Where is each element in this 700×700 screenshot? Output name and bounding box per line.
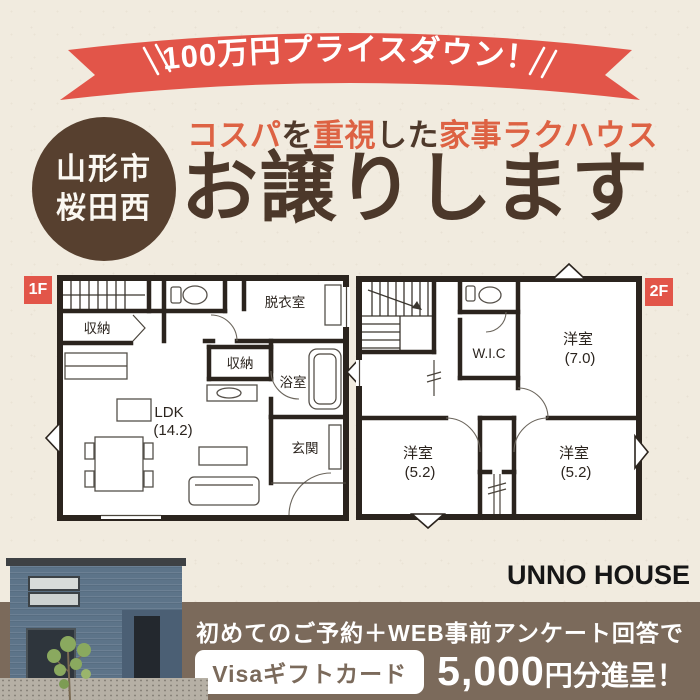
price-down-ribbon: 100万円プライスダウン！	[52, 14, 648, 102]
house-window-upper-1	[28, 576, 80, 591]
room-label-bedroom-a-size: (7.0)	[565, 350, 596, 367]
house-window-upper-2	[28, 592, 80, 607]
location-badge: 山形市 桜田西	[32, 117, 176, 261]
brand-logo: UNNO HOUSE	[507, 560, 690, 591]
room-label-storage2: 収納	[227, 356, 254, 371]
offer-amount: 5,000	[437, 648, 545, 695]
room-label-bedroom-b: 洋室	[403, 445, 433, 462]
flyer-canvas: 100万円プライスダウン！ 山形市 桜田西 コスパを重視した家事ラクハウス お譲…	[0, 0, 700, 700]
tree	[40, 632, 100, 700]
floor-label-1f: 1F	[24, 276, 52, 304]
room-label-bedroom-c: 洋室	[559, 445, 589, 462]
fp2-outer-wall	[359, 279, 639, 517]
room-label-bathroom: 浴室	[280, 374, 307, 390]
room-label-bedroom-a: 洋室	[563, 331, 593, 348]
house-gravel-ground	[0, 678, 208, 700]
room-label-storage1: 収納	[84, 321, 111, 336]
location-district: 桜田西	[56, 189, 152, 228]
room-label-wic: W.I.C	[473, 346, 506, 361]
house-photo	[0, 556, 208, 700]
offer-row: Visaギフトカード 5,000 円分進呈！	[180, 648, 700, 695]
offer-condition: 初めてのご予約＋WEB事前アンケート回答で	[180, 614, 700, 648]
room-label-ldk: LDK	[154, 404, 183, 421]
room-label-entrance: 玄関	[292, 440, 319, 456]
main-title: お譲りします	[181, 149, 681, 230]
visa-gift-card-badge: Visaギフトカード	[195, 650, 424, 694]
house-roof	[6, 558, 186, 566]
offer-amount-suffix: 円分進呈！	[545, 654, 685, 694]
room-label-bedroom-b-size: (5.2)	[405, 464, 436, 481]
room-label-dressing: 脱衣室	[265, 294, 306, 310]
floorplan-1f: 収納 脱衣室 収納 浴室 玄関 LDK (14.2)	[57, 275, 349, 521]
location-city: 山形市	[56, 150, 152, 189]
room-label-bedroom-c-size: (5.2)	[561, 464, 592, 481]
floorplan-2f: W.I.C 洋室 (7.0) 洋室 (5.2) 洋室 (5.2)	[356, 276, 642, 520]
room-label-ldk-size: (14.2)	[153, 422, 192, 439]
house-front-door	[134, 616, 160, 681]
floor-label-2f: 2F	[645, 278, 673, 306]
offer-amount-wrap: 5,000 円分進呈！	[437, 648, 685, 695]
